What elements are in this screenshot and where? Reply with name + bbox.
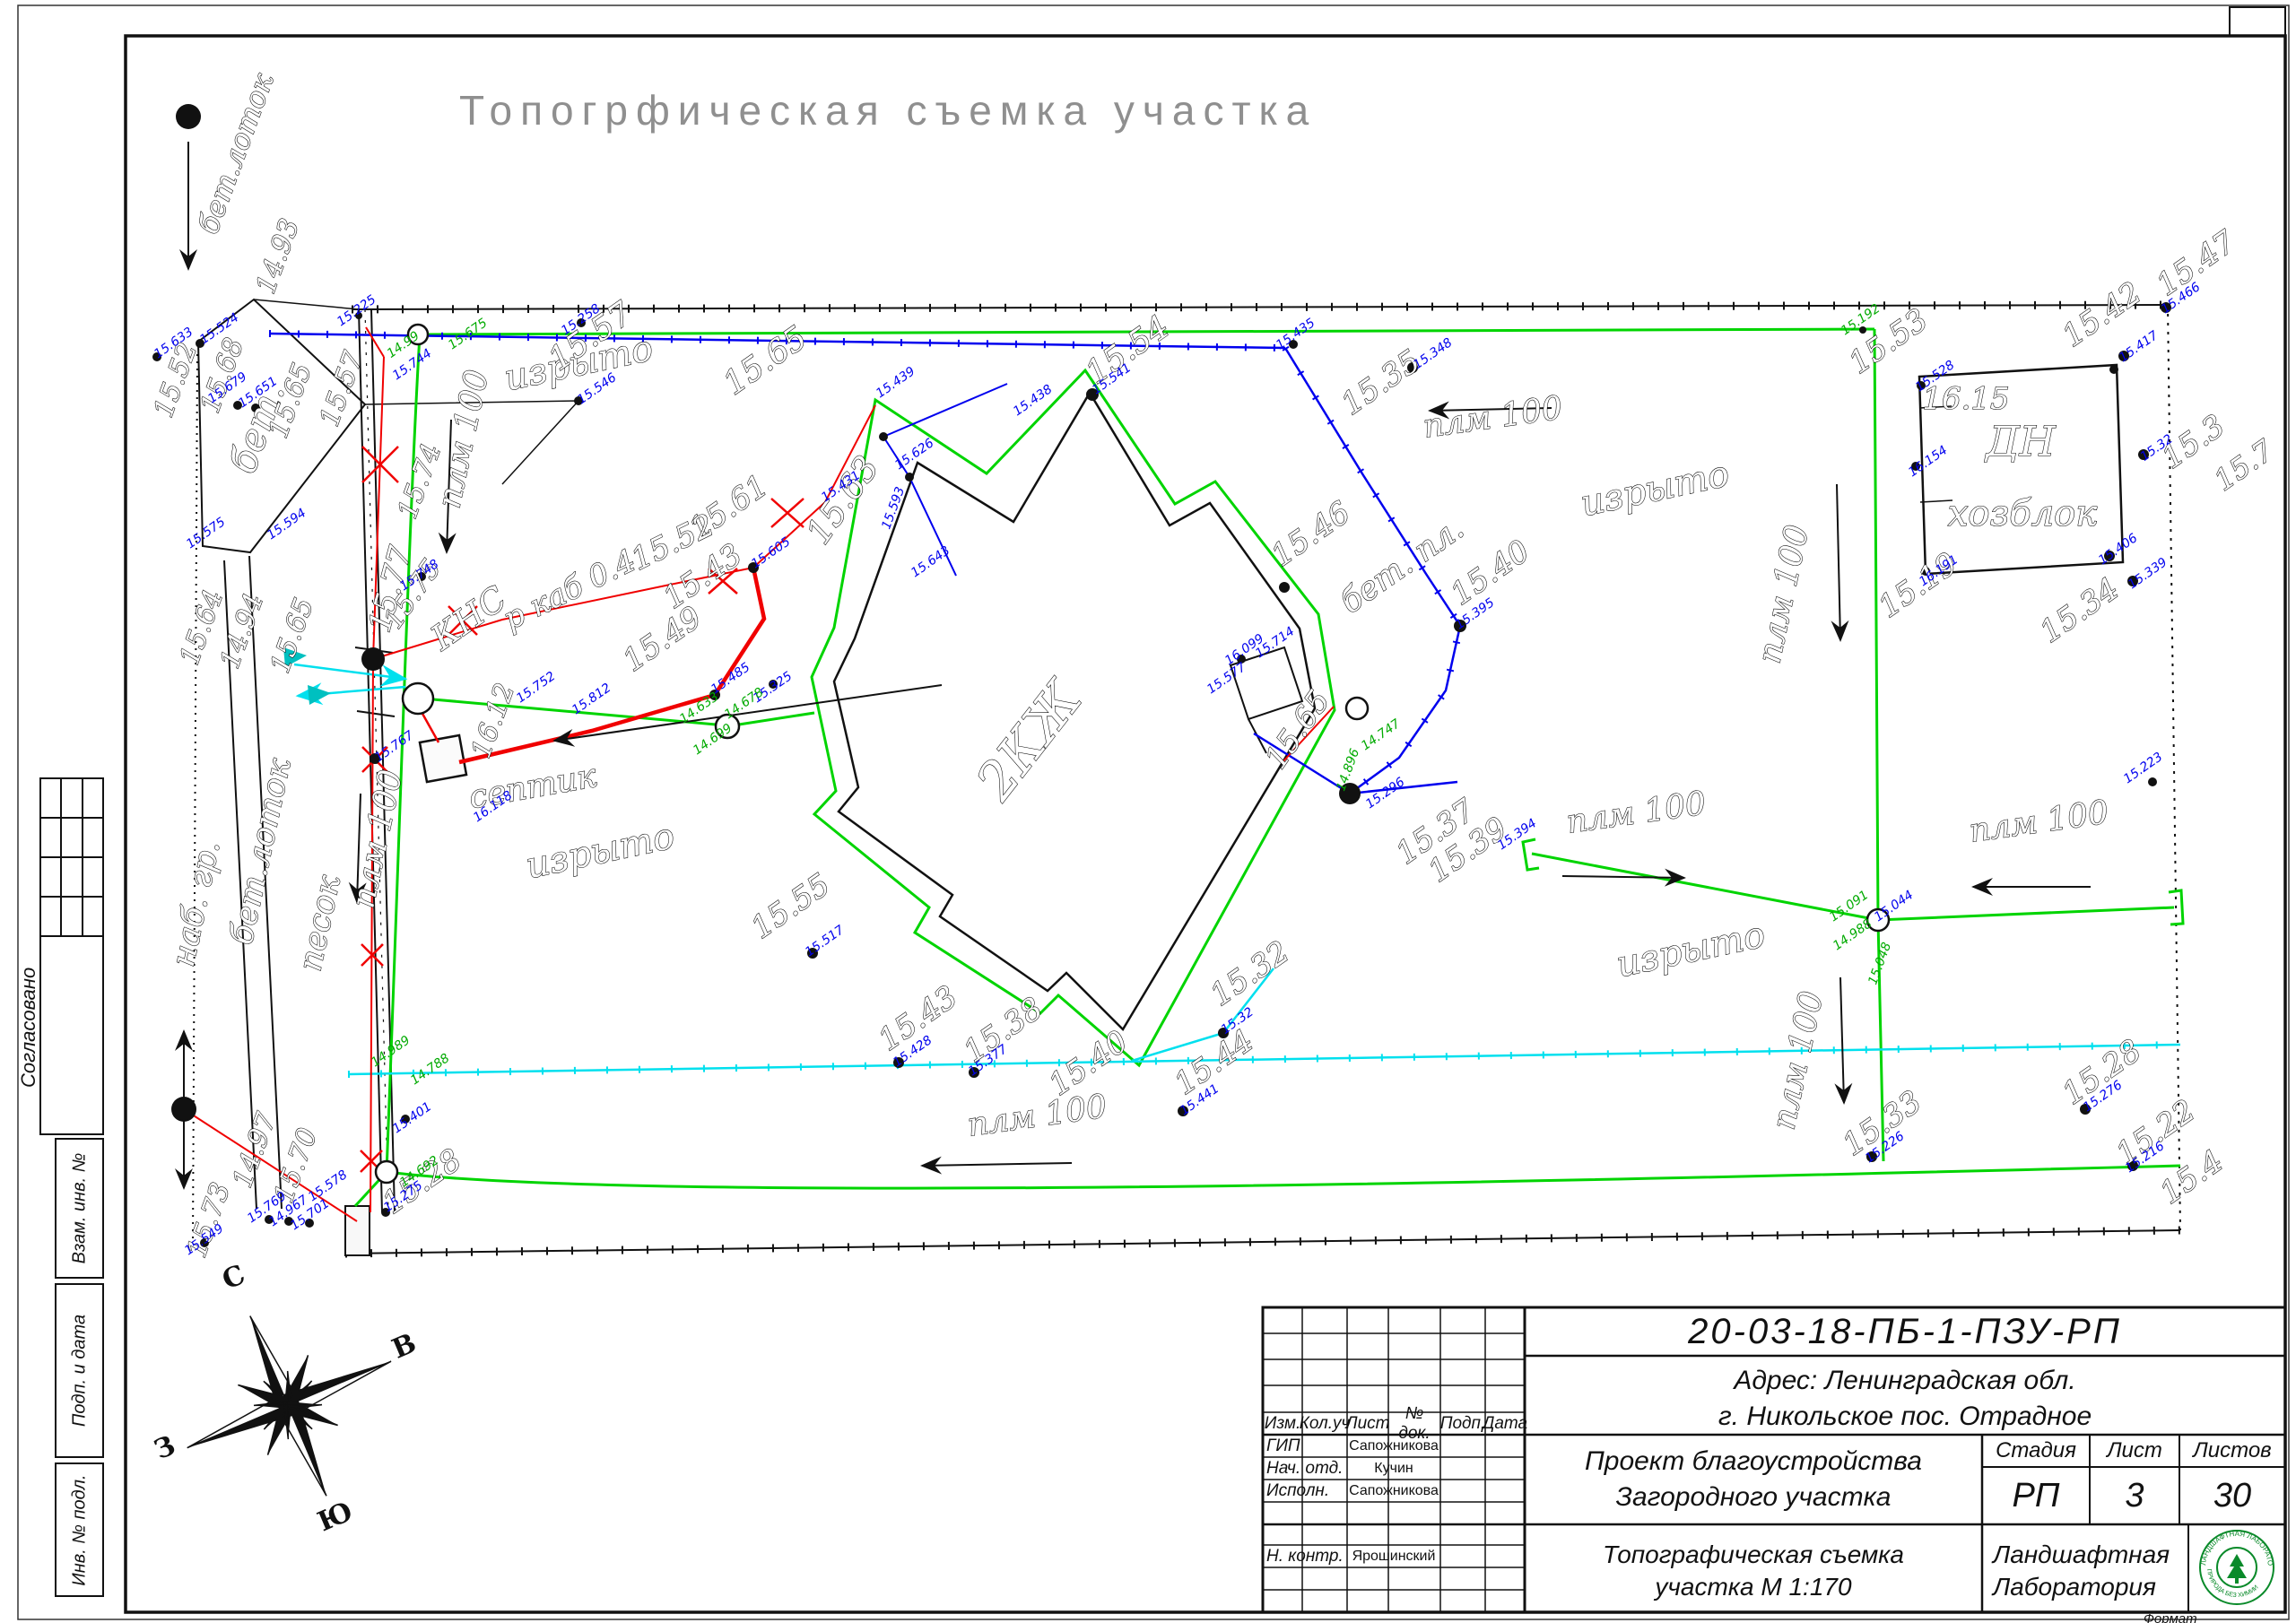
- corner-box: [2230, 7, 2285, 36]
- area-label: изрыто: [1577, 453, 1733, 525]
- area-label: наб. гр.: [165, 838, 228, 970]
- point-elevation-label: 15.223: [2121, 750, 2165, 786]
- tb-staff-role: Н. контр.: [1266, 1547, 1345, 1567]
- point-elevation-label: 15.577: [1205, 660, 1248, 697]
- point-elevation-label: 15.643: [909, 543, 952, 580]
- area-label: плм 100: [1751, 522, 1816, 666]
- labels-layer: бет.лотокбет.наб. гр.бет.лотокпесокизрыт…: [148, 68, 2280, 1262]
- company-line1: Ландшафтная: [1993, 1539, 2196, 1571]
- area-label: плм 100: [1421, 389, 1564, 445]
- area-label: бет.лоток: [191, 68, 281, 239]
- point-elevation-label: 15.401: [390, 1099, 434, 1136]
- survey-point: [1279, 582, 1290, 593]
- point-elevation-label: 15.605: [749, 534, 793, 571]
- tb-column-header: Подп.: [1440, 1412, 1485, 1435]
- point-elevation-label: 15.767: [372, 728, 416, 765]
- format-label: Формат: [2144, 1611, 2197, 1623]
- tb-staff-name: Сапожникова: [1347, 1435, 1440, 1457]
- elevation-label: 15.46: [1265, 495, 1357, 575]
- area-label: изрыто: [1613, 914, 1769, 985]
- sidebar-podp: Подп. и дата: [70, 1304, 91, 1438]
- elevation-label: ДН: [1984, 417, 2056, 465]
- area-label: плм 100: [1967, 794, 2110, 849]
- point-elevation-label: 15.578: [306, 1167, 350, 1204]
- sidebar-soglasovano: Согласовано: [17, 980, 40, 1088]
- elevation-label: 16.15: [1922, 381, 2009, 417]
- tb-staff-role: ГИП: [1266, 1436, 1345, 1456]
- sheets-total: 30: [2179, 1467, 2285, 1524]
- elevation-label: 15.54: [1079, 308, 1176, 392]
- company-name: Ландшафтная Лаборатория: [1984, 1539, 2196, 1603]
- point-elevation-label: 15.812: [570, 681, 613, 717]
- septic-tank: [420, 735, 466, 782]
- company-line2: Лаборатория: [1993, 1571, 2196, 1603]
- compass-letter: З: [150, 1430, 180, 1467]
- drawing-name: Топографическая съемка участка М 1:170: [1525, 1539, 1982, 1603]
- tb-column-header: Лист: [1347, 1412, 1388, 1435]
- elevation-label: 15.63: [798, 448, 886, 551]
- tb-column-header: Дата: [1485, 1412, 1525, 1435]
- compass-letter: С: [218, 1259, 250, 1297]
- survey-point: [2148, 777, 2157, 786]
- sheets-label: Листов: [2179, 1435, 2285, 1467]
- point-elevation-label: 15.339: [2126, 555, 2170, 592]
- sidebar-inv: Инв. № подл.: [70, 1463, 91, 1598]
- point-elevation-label: 15.048: [1865, 941, 1894, 987]
- project-line2: Загородного участка: [1525, 1480, 1982, 1515]
- survey-point: [171, 1097, 196, 1122]
- drawing-line2: участка М 1:170: [1525, 1571, 1982, 1603]
- stage-label: Стадия: [1982, 1435, 2090, 1467]
- tb-staff-name: Сапожникова: [1347, 1480, 1440, 1502]
- area-label: плм 100: [430, 367, 496, 511]
- project-name: Проект благоустройства Загородного участ…: [1525, 1444, 1982, 1515]
- well-circle: [1346, 698, 1368, 719]
- tb-staff-name: Кучин: [1347, 1457, 1440, 1480]
- point-elevation-label: 15.439: [874, 364, 918, 401]
- area-label: песок: [291, 872, 348, 974]
- survey-point: [2109, 365, 2118, 374]
- tb-staff-role: Нач. отд.: [1266, 1459, 1345, 1479]
- point-elevation-label: 14.747: [1359, 716, 1403, 753]
- compass-letter: В: [387, 1328, 421, 1366]
- elevation-label: 15.35: [1335, 343, 1427, 423]
- survey-point: [879, 432, 888, 441]
- point-elevation-label: 15.752: [514, 669, 558, 706]
- area-label: плм 100: [1765, 988, 1831, 1133]
- point-elevation-label: 15.348: [1411, 335, 1455, 372]
- well-circle: [403, 683, 433, 714]
- sheet-label: Лист: [2090, 1435, 2179, 1467]
- area-label: р каб 0.4: [498, 542, 641, 638]
- sheet-number: 3: [2090, 1467, 2179, 1524]
- point-elevation-label: 15.626: [892, 436, 936, 473]
- point-elevation-label: 15.438: [1011, 382, 1055, 419]
- survey-point: [361, 647, 385, 671]
- elevation-label: 15.4: [2153, 1143, 2230, 1211]
- survey-point: [176, 104, 201, 129]
- green-survey-lines: [355, 329, 2183, 1206]
- elevation-label: 15.34: [2033, 571, 2126, 651]
- area-label: бет.лоток: [223, 755, 299, 948]
- area-label: плм 100: [1564, 785, 1708, 840]
- doc-number: 20-03-18-ПБ-1-ПЗУ-РП: [1525, 1307, 2285, 1356]
- point-elevation-label: 15.593: [879, 485, 908, 532]
- compass-rose: СВЮЗ: [150, 1259, 421, 1538]
- tb-staff-name: Ярошинский: [1347, 1545, 1440, 1567]
- project-line1: Проект благоустройства: [1525, 1444, 1982, 1480]
- point-elevation-label: 15.485: [709, 660, 752, 697]
- survey-points-layer: [152, 104, 2171, 1247]
- elevation-label: 14.93: [250, 214, 306, 298]
- point-elevation-label: 15.296: [1363, 775, 1407, 811]
- drawing-sheet: Топогрфическая съемка участка: [0, 0, 2296, 1623]
- sidebar-vzam: Взам. инв. №: [70, 1141, 91, 1276]
- compass-letter: Ю: [313, 1496, 357, 1538]
- address-line1: Адрес: Ленинградская обл.: [1525, 1363, 2285, 1399]
- point-elevation-label: 15.417: [2117, 328, 2161, 365]
- tb-column-header: Кол.уч: [1302, 1412, 1347, 1435]
- tb-staff-role: Исполн.: [1266, 1481, 1345, 1501]
- tb-column-header: Изм.: [1263, 1412, 1302, 1435]
- elevation-label: 15.32: [1204, 934, 1296, 1014]
- point-elevation-label: 14.699: [691, 721, 735, 758]
- tb-column-header: № док.: [1388, 1412, 1440, 1435]
- area-label: КНС: [423, 578, 514, 658]
- area-label: хозблок: [1948, 493, 2097, 534]
- address: Адрес: Ленинградская обл. г. Никольское …: [1525, 1363, 2285, 1435]
- elevation-label: 15.49: [616, 600, 709, 680]
- elevation-label: 15.65: [265, 594, 320, 677]
- address-line2: г. Никольское пос. Отрадное: [1525, 1399, 2285, 1435]
- area-label: бет. пл.: [1334, 510, 1471, 621]
- point-elevation-label: 15.517: [803, 923, 847, 959]
- point-elevation-label: 14.633: [677, 690, 721, 726]
- survey-point: [905, 473, 914, 482]
- area-label: 2КЖ: [964, 668, 1095, 811]
- drawing-line1: Топографическая съемка: [1525, 1539, 1982, 1571]
- area-label: изрыто: [522, 815, 678, 887]
- area-label: плм 100: [965, 1088, 1109, 1143]
- red-lines: [184, 327, 1334, 1221]
- stage-value: РП: [1982, 1467, 2090, 1524]
